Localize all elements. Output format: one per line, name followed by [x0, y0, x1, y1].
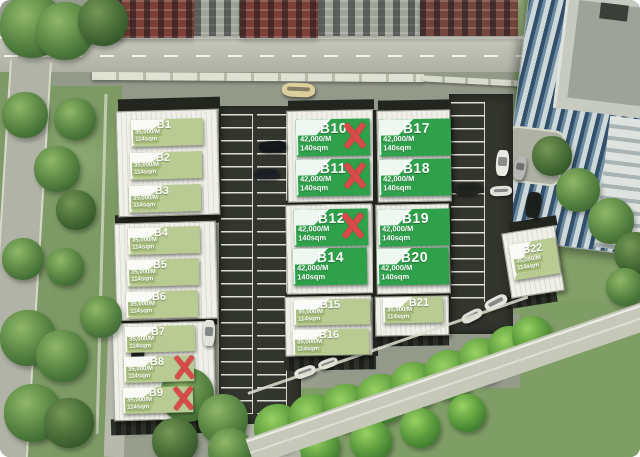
car [454, 182, 483, 195]
car [254, 169, 279, 180]
tower-rooftop-unit [599, 2, 629, 21]
unit-area: 140sqm [295, 273, 327, 282]
unit-banner-b16: B1635,000/M114sqm [293, 328, 369, 355]
sold-x-icon [174, 353, 197, 382]
unit-banner-b15: B1535,000/M114sqm [294, 298, 370, 325]
unit-area: 114sqm [133, 136, 159, 144]
unit-area: 114sqm [126, 373, 152, 381]
gray-building [318, 0, 420, 36]
tree [78, 0, 128, 46]
unit-area: 114sqm [132, 169, 158, 177]
unit-banner-b20: B2042,000/M140sqm [377, 247, 450, 285]
brick-building [420, 0, 518, 36]
unit-banner-b1: B135,000/M114sqm [131, 118, 204, 147]
tree [2, 238, 44, 280]
tree [2, 92, 48, 138]
car [282, 82, 315, 97]
unit-banner-b14: B1442,000/M140sqm [293, 247, 368, 285]
unit-banner-b2: B235,000/M114sqm [130, 151, 203, 180]
unit-banner-b12: B1242,000/M140sqm [294, 208, 369, 246]
unit-banner-b10: B1042,000/M140sqm [296, 118, 371, 156]
tree [44, 398, 94, 448]
unit-banner-b17: B1742,000/M140sqm [379, 118, 452, 156]
unit-area: 140sqm [381, 144, 413, 153]
tree [606, 268, 640, 306]
aerial-site-plan: B135,000/M114sqmB235,000/M114sqmB335,000… [0, 0, 640, 457]
unit-banner-b9: B935,000/M114sqm [123, 386, 194, 414]
tree [80, 296, 122, 338]
unit-banner-b8: B835,000/M114sqm [124, 355, 195, 383]
unit-area: 114sqm [131, 202, 157, 210]
tree [46, 248, 84, 286]
sold-x-icon [340, 210, 367, 240]
unit-banner-b19: B1942,000/M140sqm [378, 208, 451, 246]
unit-area: 114sqm [385, 314, 411, 321]
tree [54, 98, 96, 140]
unit-area: 114sqm [129, 276, 155, 284]
parking-lines [451, 102, 485, 302]
gray-building [194, 0, 240, 36]
sold-x-icon [173, 384, 196, 413]
unit-banner-b18: B1842,000/M140sqm [379, 158, 452, 196]
unit-area: 140sqm [298, 184, 330, 193]
unit-area: 140sqm [296, 234, 328, 243]
tree [56, 190, 96, 230]
unit-area: 140sqm [380, 234, 412, 243]
unit-area: 114sqm [128, 308, 154, 316]
unit-banner-b22: B2235,000/M114sqm [508, 238, 560, 281]
parking-lines [221, 114, 253, 414]
unit-area: 114sqm [125, 404, 151, 412]
hedge-tree [448, 394, 486, 432]
unit-area: 140sqm [379, 273, 411, 282]
car [203, 320, 216, 346]
unit-banner-b7: B735,000/M114sqm [125, 325, 196, 353]
hedge-tree [400, 408, 440, 448]
unit-area: 140sqm [381, 184, 413, 193]
parking-lines [257, 114, 287, 414]
sold-x-icon [342, 120, 369, 150]
sold-x-icon [342, 160, 369, 190]
unit-area: 114sqm [127, 343, 153, 351]
tree [36, 330, 88, 382]
brick-building [240, 0, 318, 38]
unit-banner-b6: B635,000/M114sqm [126, 290, 199, 319]
unit-banner-b5: B535,000/M114sqm [127, 258, 200, 287]
car [490, 185, 512, 196]
car [259, 141, 286, 153]
tree [152, 418, 198, 457]
unit-banner-b4: B435,000/M114sqm [128, 226, 201, 255]
unit-area: 114sqm [296, 316, 322, 323]
unit-area: 114sqm [130, 244, 156, 252]
unit-banner-b3: B335,000/M114sqm [129, 184, 202, 213]
unit-area: 140sqm [298, 144, 330, 153]
unit-banner-b21: B2135,000/M114sqm [383, 296, 443, 323]
tree [34, 146, 80, 192]
unit-area: 114sqm [295, 346, 321, 353]
unit-banner-b11: B1142,000/M140sqm [296, 158, 371, 196]
